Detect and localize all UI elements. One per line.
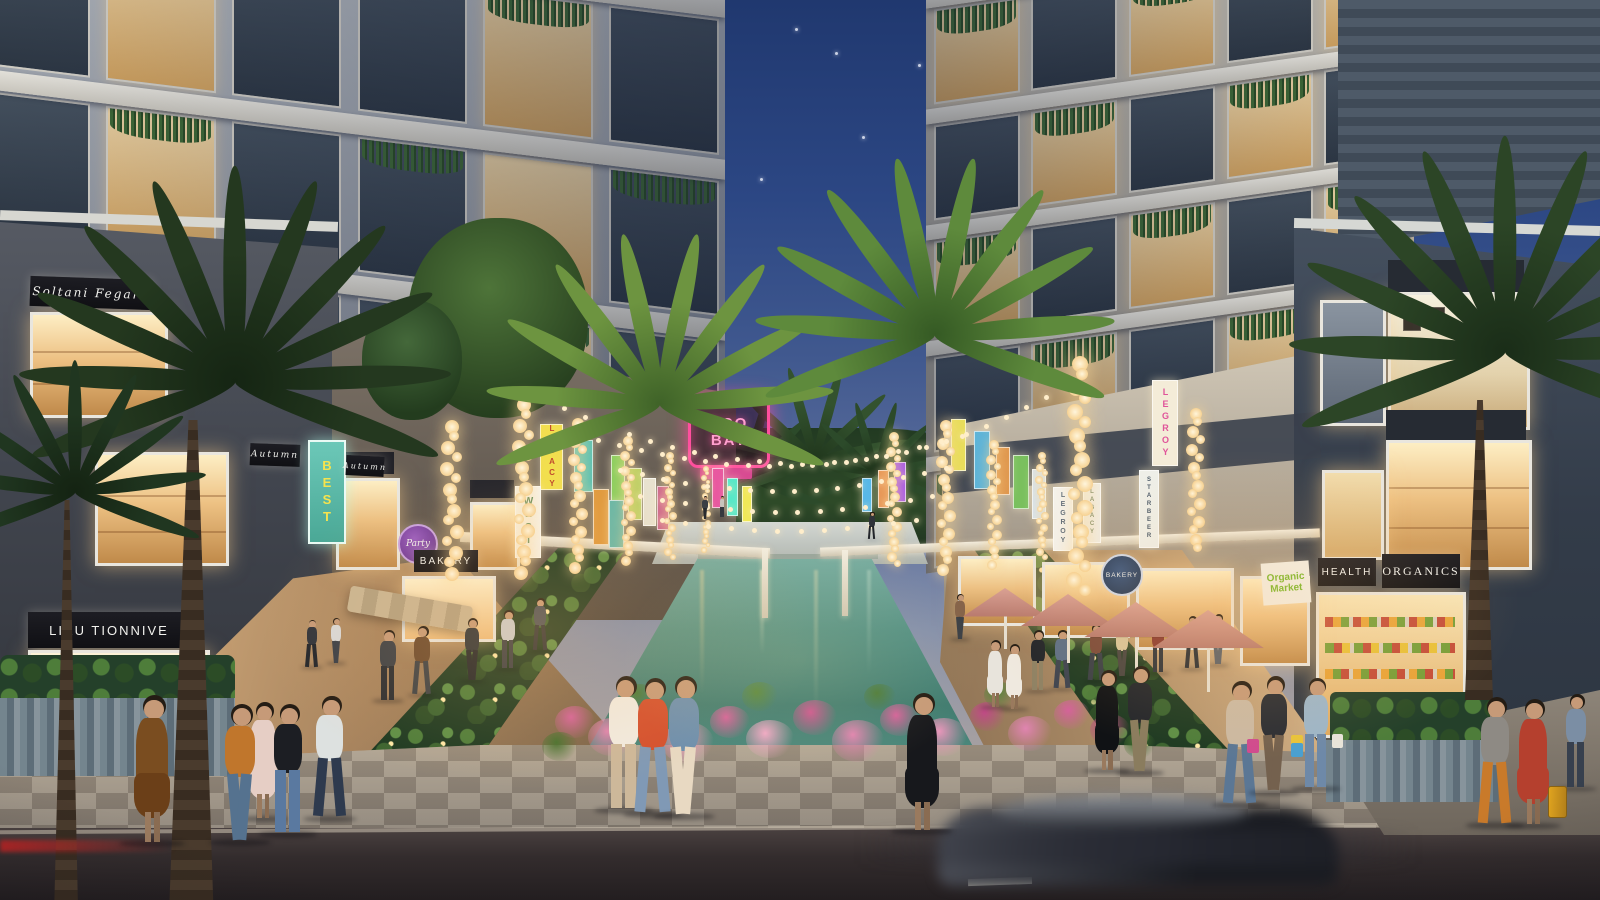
water-reflection [867,570,871,675]
person-leg [1063,660,1070,688]
person-leg [1567,742,1575,787]
string-light-bulb [1044,395,1049,400]
string-light-bulb [863,505,868,510]
trunk-light [1070,464,1082,476]
person [1122,666,1159,774]
trunk-light [943,555,952,564]
string-light-bulb [944,439,949,444]
person-head [281,708,298,725]
string-light-bulb [773,510,778,515]
person [127,695,178,845]
person [410,626,434,696]
trunk-light [1193,417,1202,426]
string-light-bulb [884,454,889,459]
person-legs [924,802,930,830]
sign-lixu-tionnive: LIXU TIONNIVE [28,612,190,648]
person-leg [533,625,539,651]
person-torso [955,601,965,618]
person-shadow [1212,802,1267,808]
person-leg [389,666,395,700]
person-torso [501,619,514,641]
person-shadow [1291,786,1341,792]
person-leg [1317,734,1326,787]
person-legs [1535,799,1540,825]
person [266,704,311,836]
trunk-light [993,478,1001,486]
person-shadow [1049,688,1076,691]
trunk-light [1068,488,1080,500]
trunk-light [452,452,463,463]
person-leg [868,526,871,539]
string-light-bulb [683,481,688,486]
string-light-bulb [735,457,740,462]
flower-cluster [864,684,896,710]
person-leg [704,508,707,519]
trunk-light [442,536,453,547]
star [760,178,763,181]
person-head [233,708,251,726]
person [952,594,968,640]
trunk-light [514,566,528,580]
person-torso [1481,717,1509,765]
person-leg [1054,660,1061,688]
trunk-light [890,485,898,493]
person-torso [414,637,429,663]
person [867,512,877,540]
side-window-mid [1322,470,1384,560]
suitcase [1548,786,1567,818]
person-head [144,700,164,720]
trunk-light [894,560,902,568]
trunk-light [626,444,634,452]
person-head [1488,701,1505,718]
string-light-bulb [904,450,909,455]
string-light-bulb [670,445,675,450]
trunk-light [893,470,901,478]
trunk-light [449,431,460,442]
string-light-bulb [789,464,794,469]
person-leg [313,758,328,817]
trunk-light [569,562,581,574]
banner-sign [643,478,656,526]
string-light-bulb [639,448,644,453]
person [898,693,946,833]
person [216,704,264,844]
flower-cluster [832,720,884,762]
person-shadow [301,666,322,668]
person-torso [274,724,303,773]
person-leg [1223,743,1238,802]
trunk-light [944,510,956,522]
shopping-bag [1332,734,1343,748]
banner-sign [1013,455,1029,509]
trunk-light [570,499,579,508]
trunk-light [939,537,948,546]
person-shadow [326,662,346,664]
person [461,618,483,682]
trunk-light [1188,489,1197,498]
trunk-light [664,518,670,524]
trunk-light [621,556,631,566]
produce-shelf-row [1325,669,1455,679]
bakery-badge: BAKERY [1101,554,1143,596]
person-leg [1477,762,1492,824]
string-light-bulb [917,445,922,450]
string-light-bulb [627,432,632,437]
trunk-light [670,470,676,476]
trunk-light [701,547,707,553]
trunk-light [443,515,454,526]
string-light-bulb [853,458,858,463]
sign-autumn-a: Autumn [250,443,301,467]
person-torso [465,628,479,652]
string-light-bulb [660,518,665,523]
person-leg [335,641,340,663]
person-head [1035,632,1043,640]
person-leg [959,617,964,639]
string-light-bulb [891,521,896,526]
trunk-light [514,514,525,525]
trunk-light [625,549,633,557]
trunk-light [1071,512,1083,524]
person [1254,676,1294,794]
person-leg [412,661,420,694]
light-wrapped-trunk [445,420,459,586]
person-shadow [950,638,970,640]
person-leg [289,770,299,832]
string-light-bulb [822,528,827,533]
trunk-light [1076,536,1088,548]
person [701,496,709,520]
banner-sign-label: STARBEER [1146,477,1152,541]
trunk-light [937,564,949,576]
person-torso [1261,694,1287,738]
person-torso [1304,695,1328,736]
string-light-bulb [864,457,869,462]
flower-cluster [793,700,837,735]
person-leg [1305,734,1314,787]
person-head [323,700,339,716]
trunk-light [665,506,671,512]
showroom-b-header [1386,410,1526,440]
person-legs [915,802,921,830]
person-leg [381,666,387,700]
trunk-light [888,530,896,538]
trunk-light [521,409,532,420]
person-head [1233,685,1249,701]
trunk-light [942,483,951,492]
trunk-light [937,519,946,528]
banner-sign [593,489,609,545]
string-light-bulb [914,518,919,523]
sign-autumn-a-label: Autumn [251,449,299,461]
person-legs [996,693,999,707]
organic-market-line2: Market [1270,582,1303,595]
sign-health-label: HEALTH [1322,567,1373,578]
string-light-bulb [618,468,623,473]
person-head [677,680,695,698]
person-shadow [303,816,358,822]
planter-hedge-right [1330,692,1490,746]
trunk-light [668,458,674,464]
flower-cluster [1008,716,1052,751]
trunk-light [992,448,1000,456]
person-torso [331,625,341,642]
string-light-bulb [944,466,949,471]
person-leg [872,526,875,539]
trunk-light [624,489,632,497]
trunk-light [628,459,636,467]
string-light-bulb [908,498,913,503]
person-legs [1102,750,1106,770]
trunk-light [1042,554,1048,560]
bakery-badge-label: BAKERY [1106,572,1138,579]
light-wrapped-trunk [666,452,674,560]
person-shadow [528,650,552,653]
light-wrapped-trunk [1190,408,1202,560]
string-light-bulb [799,529,804,534]
light-wrapped-trunk [1038,452,1046,560]
canopy-post [842,550,848,616]
trunk-light [447,494,458,505]
banner-sign [951,419,966,471]
trunk-light [987,560,997,570]
person-leg [611,744,622,808]
banner-best-label: BEST [321,458,334,526]
person-head [1310,681,1325,696]
sign-autumn-b-label: Autumn [343,460,387,471]
trunk-light [621,519,629,527]
person-legs [992,693,995,707]
sign-health: HEALTH [1318,558,1376,586]
sign-party-label: Party [406,539,430,549]
trunk-light [1195,453,1204,462]
string-light-bulb [930,494,935,499]
trunk-light [1194,498,1206,510]
showroom-b-window [1386,440,1532,570]
trunk-light [522,503,536,517]
trunk-light [524,430,535,441]
string-light-bulb [792,489,797,494]
string-light-bulb [818,509,823,514]
trunk-light [991,553,999,561]
person-leg [502,640,507,668]
string-light-bulb [844,460,849,465]
trunk-light [577,463,586,472]
person-leg [312,644,318,667]
sign-organics: ORGANICS [1382,554,1460,588]
string-light-bulb [922,471,927,476]
person-leg [305,644,311,667]
person-head [915,697,933,715]
person-torso [1128,683,1152,723]
trunk-light [670,554,676,560]
light-wrapped-trunk [623,436,633,568]
person-skirt [1095,723,1120,754]
string-light-bulb [692,450,697,455]
person-legs [1015,695,1018,708]
person-shadow [1248,790,1300,796]
promenade-night-rendering: Soltani Fegaro Autumn BEST Autumn LIXU T… [0,0,1600,900]
trunk-light [1193,543,1202,552]
light-wrapped-trunk [989,440,999,568]
person [1027,630,1048,692]
trunk-light [451,473,462,484]
sign-organics-label: ORGANICS [1382,564,1459,579]
trunk-light [938,501,947,510]
trunk-light [1042,470,1048,476]
person-legs [1108,750,1112,770]
water-reflection [814,570,818,715]
flower-cluster [542,732,578,761]
trunk-light [990,493,998,501]
produce-shelf-row [1325,643,1455,653]
string-light-bulb [824,462,829,467]
trunk-light [622,504,630,512]
string-light-bulb [901,475,906,480]
person [1560,694,1593,790]
trunk-light [894,455,902,463]
trunk-light [1079,416,1091,428]
person [376,630,400,702]
trunk-light [891,545,899,553]
person-leg [1032,661,1037,690]
trunk-light [1189,525,1198,534]
person-skirt [134,773,171,818]
flower-cluster [710,706,750,738]
star [862,136,865,139]
person-shadow [495,668,522,671]
trunk-light [627,474,635,482]
shopping-bag [1247,739,1259,753]
person-shadow [1116,770,1164,775]
person-torso [1566,709,1587,745]
person-torso [1031,640,1044,663]
person [531,598,549,652]
canopy-post [762,548,768,618]
person-head [1102,673,1115,686]
person-torso [380,641,396,668]
trunk-light [892,440,900,448]
person-head [1268,680,1283,695]
trunk-light [1074,440,1086,452]
trunk-light [987,523,995,531]
car-motion-blur [938,790,1338,888]
person-leg [423,661,431,694]
person [498,610,518,670]
car-motion-streak [858,830,1418,864]
person-shadow [259,831,317,838]
person-leg [722,507,724,517]
person [1090,670,1125,772]
person-head [384,632,393,641]
person [309,696,351,820]
person-shadow [1180,668,1204,671]
person [660,676,708,818]
person-shadow [407,694,438,698]
person-leg [509,640,514,668]
person-leg [331,758,346,817]
person-torso [534,606,546,626]
person-shadow [458,680,486,683]
trunk-light [445,567,459,581]
string-light-bulb [1004,415,1009,420]
person-leg [1496,762,1511,824]
banner-sign: STARBEER [1139,470,1159,548]
person-torso [225,726,255,778]
trunk-light [576,508,588,520]
person-leg [541,625,547,651]
trunk-light [1037,506,1043,512]
trunk-light [515,493,526,504]
person [718,496,725,518]
trunk-light [622,534,630,542]
trunk-light [988,508,996,516]
string-light-bulb [1024,405,1029,410]
trunk-light [994,463,1002,471]
trunk-light [574,481,583,490]
banner-sign-label: LEGROY [1060,492,1067,546]
person [1297,678,1335,790]
trunk-light [569,517,578,526]
trunk-light [575,553,584,562]
person-leg [275,770,285,832]
trunk-light [571,535,580,544]
trunk-light [1036,518,1042,524]
light-wrapped-trunk [517,398,531,582]
trunk-light [1041,512,1049,520]
produce-shelf-row [1325,617,1455,627]
person-legs [145,812,151,842]
trunk-light [450,525,464,539]
banner-sign-label: LEGROY [1161,387,1170,459]
trunk-light [943,429,952,438]
trunk-light [988,538,996,546]
string-light-bulb [814,488,819,493]
trunk-light [520,556,531,567]
flower-cluster [746,720,794,758]
string-light-bulb [705,484,710,489]
string-light-bulb [964,432,969,437]
flower-cluster [1054,700,1090,729]
person-legs [1011,695,1014,708]
person-leg [634,747,650,813]
trunk-light [1187,507,1196,516]
person [304,620,320,668]
trunk-light [578,445,587,454]
string-light-bulb [984,424,989,429]
banner-sign: LEGROY [1152,380,1178,466]
person-torso [307,627,317,645]
person-torso [316,715,343,761]
person-leg [1159,647,1163,673]
star [795,28,798,31]
person-leg [680,747,697,814]
string-light-bulb [757,459,762,464]
sign-organic-market: Organic Market [1261,560,1312,605]
person [1003,644,1025,710]
trunk-light [1079,584,1091,596]
string-light-bulb [728,507,733,512]
flower-cluster [742,682,778,711]
trunk-light [444,557,455,568]
person-shadow [1505,823,1562,829]
trunk-light [946,447,955,456]
string-light-bulb [638,494,643,499]
string-light-bulb [596,438,601,443]
trunk-light [1192,471,1201,480]
trunk-light [516,535,527,546]
